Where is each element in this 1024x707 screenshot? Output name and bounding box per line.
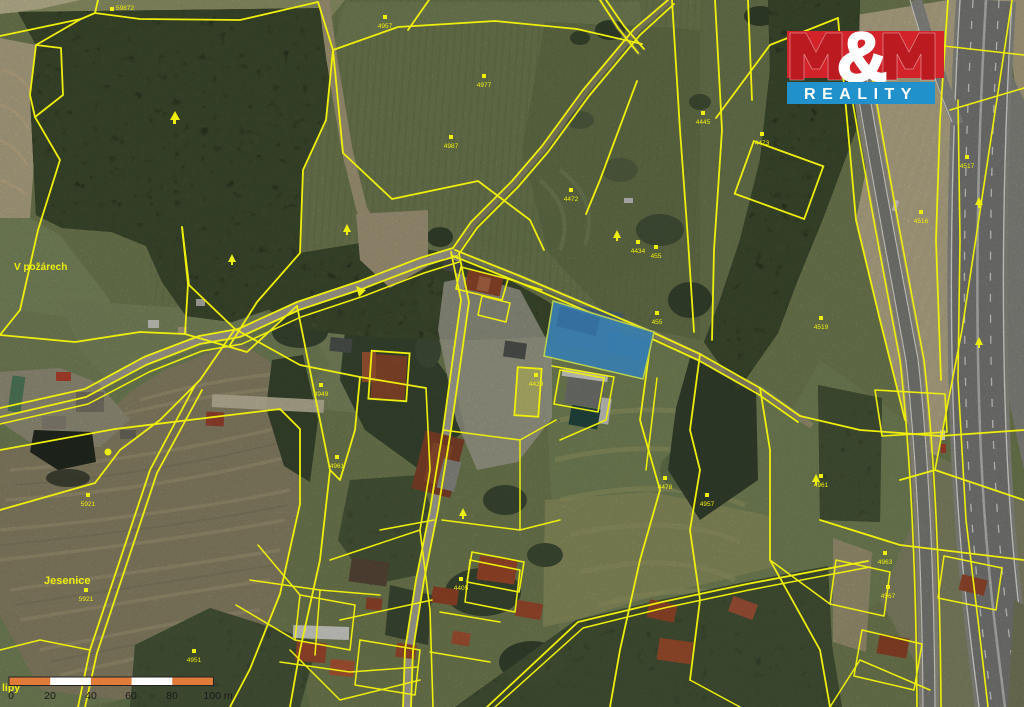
svg-text:4519: 4519	[814, 324, 829, 331]
svg-text:40: 40	[85, 690, 97, 702]
svg-text:4949: 4949	[314, 391, 329, 398]
svg-text:4957: 4957	[378, 23, 393, 30]
svg-text:4957: 4957	[700, 501, 715, 508]
svg-text:4967: 4967	[881, 593, 896, 600]
svg-text:4977: 4977	[477, 82, 492, 89]
svg-text:REALITY: REALITY	[804, 86, 918, 103]
svg-text:Jesenice: Jesenice	[44, 575, 90, 587]
svg-text:4473: 4473	[755, 140, 770, 147]
svg-text:455: 455	[651, 253, 662, 260]
svg-text:0: 0	[8, 690, 14, 702]
svg-text:100 m: 100 m	[203, 690, 232, 702]
svg-text:4987: 4987	[444, 143, 459, 150]
svg-text:4517: 4517	[960, 163, 975, 170]
svg-text:4951: 4951	[187, 657, 202, 664]
svg-text:455: 455	[652, 319, 663, 326]
svg-text:4961: 4961	[330, 463, 345, 470]
svg-text:4516: 4516	[914, 218, 929, 225]
svg-text:4963: 4963	[878, 559, 893, 566]
svg-text:5921: 5921	[81, 501, 96, 508]
svg-text:5921: 5921	[79, 596, 94, 603]
svg-text:V požárech: V požárech	[14, 262, 67, 273]
svg-text:4445: 4445	[696, 119, 711, 126]
svg-text:80: 80	[166, 690, 178, 702]
svg-text:60: 60	[125, 690, 137, 702]
svg-text:20: 20	[44, 690, 56, 702]
svg-text:4434: 4434	[631, 248, 646, 255]
svg-text:59872: 59872	[116, 5, 134, 12]
svg-text:4405: 4405	[454, 585, 469, 592]
svg-text:4472: 4472	[564, 196, 579, 203]
svg-text:4478: 4478	[658, 484, 673, 491]
svg-text:4429: 4429	[529, 381, 544, 388]
